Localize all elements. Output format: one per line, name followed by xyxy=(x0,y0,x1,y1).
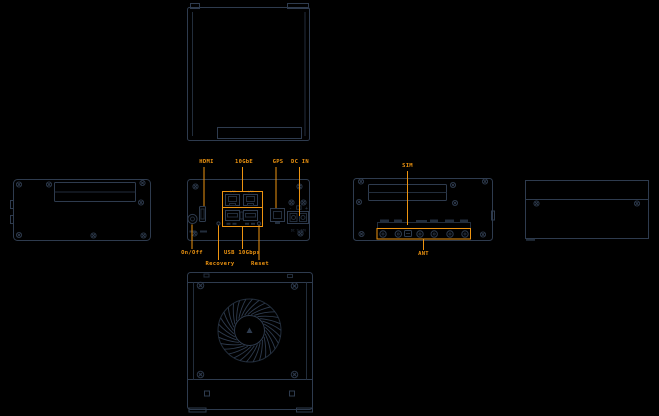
dc-terminal: - + DC 9-36V xyxy=(288,206,309,233)
label-dcin: DC IN xyxy=(291,160,309,166)
right-side-outline xyxy=(526,181,649,239)
screw-icon xyxy=(16,182,21,187)
screw-icon xyxy=(138,200,143,205)
bottom-cutout-right xyxy=(290,391,295,396)
right-side-view xyxy=(526,181,649,241)
line-art: LAN LAN - + xyxy=(0,0,659,416)
screw-icon xyxy=(16,232,21,237)
label-onoff: On/Off xyxy=(181,251,203,257)
screw-icon xyxy=(450,182,455,187)
top-slot xyxy=(218,128,302,139)
screw-icon xyxy=(480,232,485,237)
dc-ground-mark xyxy=(297,206,302,210)
gps-port xyxy=(271,209,285,225)
screw-icon xyxy=(289,200,294,205)
screw-icon xyxy=(140,180,145,185)
antenna-side-view xyxy=(354,171,495,250)
left-side-view xyxy=(11,180,151,241)
connector-plate xyxy=(378,223,471,229)
left-side-outline xyxy=(14,180,151,241)
recovery-pinhole xyxy=(217,222,220,225)
bottom-view xyxy=(188,273,313,413)
sim-slot xyxy=(405,231,412,237)
screw-icon xyxy=(291,371,298,378)
fan xyxy=(218,299,281,362)
label-sim: SIM xyxy=(402,164,413,170)
highlight-box-ant xyxy=(377,229,471,240)
vent-grille xyxy=(55,183,136,202)
label-hdmi: HDMI xyxy=(199,160,213,166)
device-drawing-canvas: LAN LAN - + xyxy=(0,0,659,416)
label-usb: USB 10Gbps xyxy=(224,251,260,257)
usb-divider xyxy=(240,212,243,219)
screw-icon xyxy=(197,371,204,378)
screw-icon xyxy=(91,233,96,238)
lan-port-2 xyxy=(244,195,258,206)
screw-icon xyxy=(634,201,639,206)
screw-icon xyxy=(291,283,298,290)
sma-connector xyxy=(395,231,401,237)
left-tab-2 xyxy=(11,216,14,224)
bottom-outline xyxy=(188,273,313,410)
screw-icon xyxy=(482,179,487,184)
top-outline xyxy=(188,8,310,141)
label-gps: GPS xyxy=(273,160,284,166)
label-reset: Reset xyxy=(251,262,269,268)
sma-connector xyxy=(380,231,386,237)
lan-port-1 xyxy=(226,195,240,206)
screw-icon xyxy=(534,201,539,206)
screw-icon xyxy=(359,231,364,236)
label-ant: ANT xyxy=(418,252,429,258)
screw-icon xyxy=(46,182,51,187)
reset-pinhole xyxy=(257,222,260,225)
hdmi-port xyxy=(200,207,208,233)
screw-icon xyxy=(193,184,198,189)
screw-icon xyxy=(301,200,306,205)
antenna-side-outline xyxy=(354,179,493,241)
top-view xyxy=(188,4,310,141)
sma-connector xyxy=(462,231,468,237)
label-recovery: Recovery xyxy=(206,262,235,268)
screw-icon xyxy=(452,200,457,205)
screw-icon xyxy=(356,199,361,204)
bottom-cutout-left xyxy=(205,391,210,396)
screw-icon xyxy=(197,282,204,289)
dc-rating-text: DC 9-36V xyxy=(291,229,306,233)
front-panel-view: LAN LAN - + xyxy=(188,167,310,260)
usb-port-2 xyxy=(244,211,258,221)
usb-port-1 xyxy=(226,211,240,221)
screw-icon xyxy=(358,179,363,184)
sma-connector xyxy=(431,231,437,237)
sma-connector xyxy=(417,231,423,237)
fan-hub-mark xyxy=(247,328,253,334)
screw-icon xyxy=(141,233,146,238)
left-tab-1 xyxy=(11,201,14,209)
label-10gbe: 10GbE xyxy=(235,160,253,166)
sma-connector xyxy=(447,231,453,237)
